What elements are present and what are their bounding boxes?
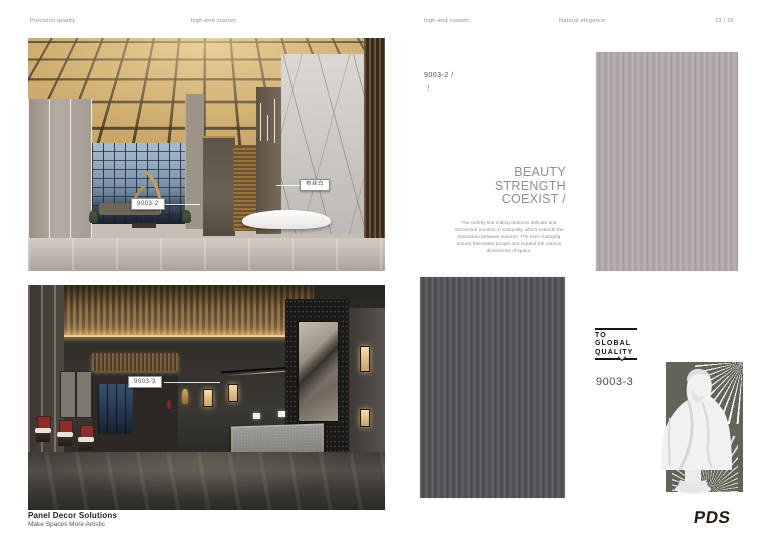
wall-sconce [360, 346, 370, 372]
desk-display-board [278, 411, 285, 417]
red-lounge-chair [57, 420, 73, 446]
product-tag-9003-3: 9003-3 [128, 376, 162, 388]
badge-bottom-rule [595, 358, 637, 360]
evening-window [98, 384, 134, 434]
chair-frame [58, 437, 72, 446]
left-panel-wall [28, 99, 92, 239]
chair-frame [79, 442, 93, 451]
material-swatch-dark [420, 277, 565, 498]
side-doorway [203, 136, 235, 236]
sculpture-base [132, 223, 156, 228]
wood-slat-column [364, 38, 385, 238]
wall-sconce [360, 409, 370, 427]
corridor-wood-ceiling [92, 353, 178, 371]
badge-text-line-1: TO GLOBAL [595, 330, 637, 349]
headline-line-2: STRENGTH [400, 180, 566, 194]
photo-dark-reception-render: 9003-3 [28, 285, 385, 510]
desk-display-board [253, 413, 260, 419]
marble-feature-wall [281, 54, 363, 233]
plant [182, 210, 191, 223]
gold-statue [182, 389, 188, 404]
right-wall [349, 308, 385, 461]
catalog-spread: Precision quality high-end custom high-e… [0, 0, 766, 545]
marble-artwork [298, 321, 339, 422]
finish-name-tag: 布丝白 [300, 179, 330, 191]
stone-floor [28, 238, 385, 271]
header-slogan-high-end-custom-left: high-end custom [191, 18, 236, 24]
wall-sconce [203, 389, 213, 407]
header-slogan-natural-elegance: Natural elegance [559, 18, 605, 24]
footer-brand-name: Panel Decor Solutions [28, 511, 117, 520]
wall-sconce [228, 384, 238, 402]
dark-marble-floor [28, 452, 385, 511]
header-slogan-high-end-custom-right: high-end custom [424, 18, 469, 24]
headline: BEAUTY STRENGTH COEXIST / [400, 166, 566, 207]
wall-art-panel [76, 371, 92, 418]
wood-slat-ceiling [49, 285, 313, 335]
wall-art-panel [60, 371, 76, 418]
plant [89, 210, 98, 223]
red-lounge-chair [78, 425, 94, 451]
pds-brand-logo: PDS [693, 508, 732, 528]
red-vase [167, 400, 171, 409]
tag-leader-line [164, 204, 200, 205]
red-lounge-chair [35, 416, 51, 442]
cove-light [49, 335, 313, 337]
product-code-9003-3: 9003-3 [596, 376, 633, 388]
tag-leader-line [276, 185, 302, 186]
to-global-quality-badge: TO GLOBAL QUALITY [595, 328, 637, 360]
headline-line-3: COEXIST / [400, 193, 566, 207]
material-swatch-light [596, 52, 738, 271]
headline-line-1: BEAUTY [400, 166, 566, 180]
product-code-9003-2: 9003-2 / [424, 72, 454, 79]
classical-bust-statue [640, 348, 746, 500]
pendant-light [260, 103, 261, 141]
page-number: 23 / 26 [708, 18, 734, 24]
chair-frame [36, 433, 50, 442]
tag-leader-line [164, 382, 220, 383]
footer-tagline: Make Spaces More Artistic [28, 521, 105, 528]
pendant-light [274, 99, 275, 143]
beige-column [185, 94, 204, 229]
white-bathtub-display [242, 210, 331, 229]
description-paragraph: The orderly line cutting deduces delicat… [452, 221, 566, 256]
photo-gold-lobby-render: 9003-2 布丝白 [28, 38, 385, 271]
badge-text-line-2: QUALITY [595, 349, 637, 358]
product-tag-9003-2: 9003-2 [131, 198, 165, 210]
pendant-light [267, 115, 268, 141]
vertical-ellipsis: ⋮ [425, 84, 432, 92]
header-slogan-precision-quality: Precision quality [30, 18, 75, 24]
